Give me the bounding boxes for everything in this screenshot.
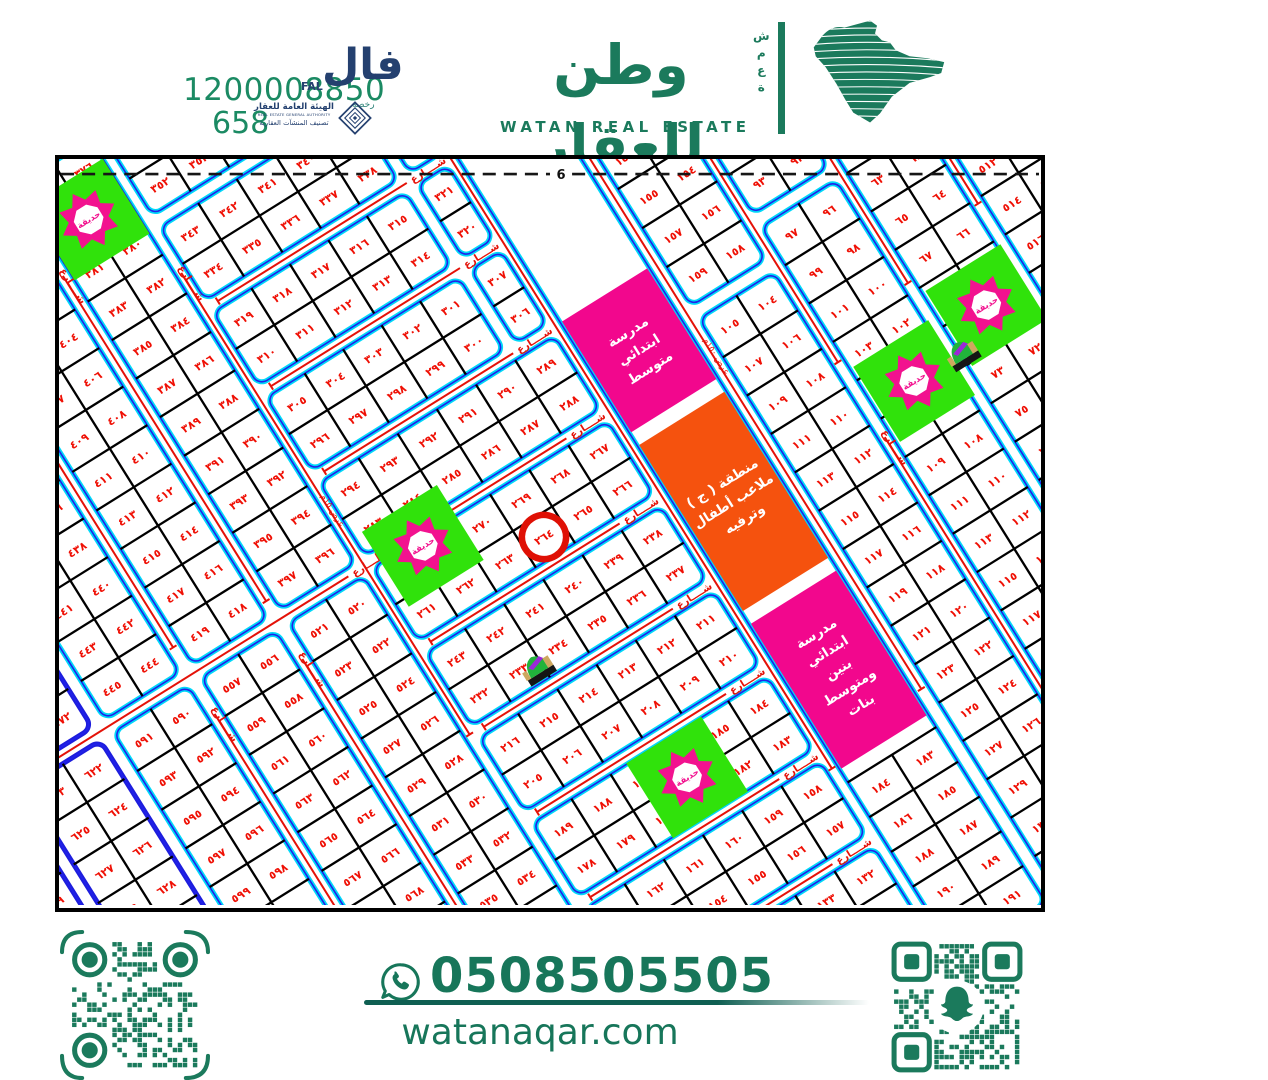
authority-diamond-icon	[338, 101, 372, 139]
brand-vertical-text: شمعة	[753, 30, 770, 93]
qr-code-snapchat	[882, 932, 1032, 1080]
saudi-map-logo	[792, 14, 960, 142]
plot-map: ٤٨١٤٨٠٤٨٣٤٨٢٤٨٥٤٨٤٤٨٧٤٨٦٤٨٩٤٨٨٤٩١٤٩٠٤٩٣٤…	[55, 155, 1045, 912]
brand-name-english: WATAN REAL ESTATE	[500, 118, 751, 136]
authority-subtitle: تصنيف المنشآت العقارية	[252, 119, 336, 127]
website-url: watanaqar.com	[395, 1012, 685, 1053]
whatsapp-number: 0508505505	[430, 948, 774, 1004]
plot-map-canvas: ٤٨١٤٨٠٤٨٣٤٨٢٤٨٥٤٨٤٤٨٧٤٨٦٤٨٩٤٨٨٤٩١٤٩٠٤٩٣٤…	[59, 159, 1041, 905]
fal-logo: فال	[322, 44, 404, 87]
authority-logo: الهيئة العامة للعقار REAL ESTATE GENERAL…	[252, 102, 336, 127]
footer-divider	[364, 1000, 869, 1005]
authority-name-en: REAL ESTATE GENERAL AUTHORITY	[252, 112, 336, 117]
brand-divider-bar	[778, 22, 785, 134]
qr-code-website	[60, 930, 210, 1080]
boundary-marker-label: 6	[557, 168, 566, 183]
fal-logo-en: FAL	[301, 80, 323, 93]
flyer: 1200008850 FAL فال رخصة 658 الهيئة العام…	[0, 0, 1268, 1080]
authority-name-ar: الهيئة العامة للعقار	[252, 102, 336, 112]
plot-map-svg: ٤٨١٤٨٠٤٨٣٤٨٢٤٨٥٤٨٤٤٨٧٤٨٦٤٨٩٤٨٨٤٩١٤٩٠٤٩٣٤…	[59, 159, 1041, 905]
